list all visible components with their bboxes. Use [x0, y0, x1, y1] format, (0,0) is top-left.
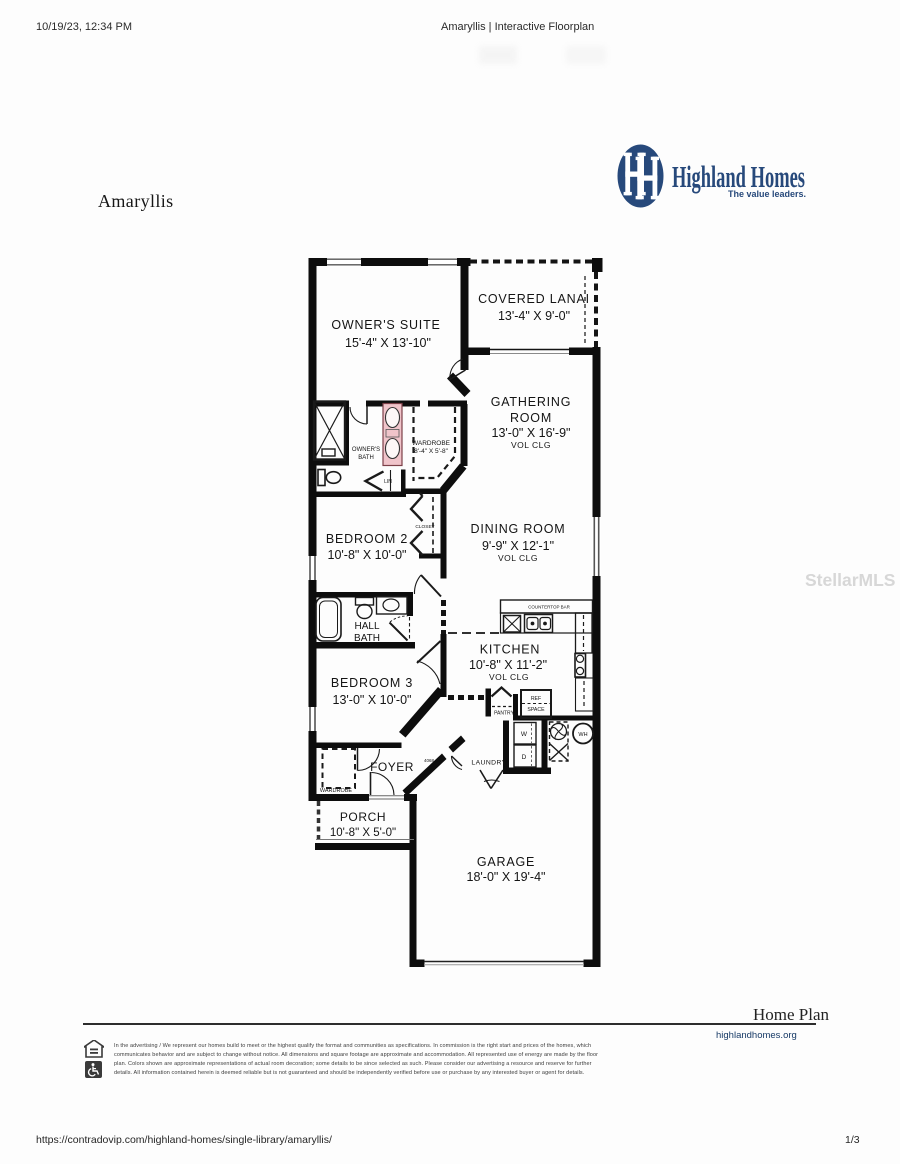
svg-text:KITCHEN: KITCHEN [480, 643, 540, 657]
svg-text:BATH: BATH [358, 455, 374, 461]
svg-text:COVERED LANAI: COVERED LANAI [478, 292, 590, 306]
svg-text:WARDROBE: WARDROBE [320, 788, 353, 794]
svg-text:W: W [521, 731, 528, 738]
svg-text:9'-9" X 12'-1": 9'-9" X 12'-1" [482, 539, 554, 553]
svg-text:10'-8" X 5'-0": 10'-8" X 5'-0" [330, 827, 396, 839]
svg-text:BEDROOM 3: BEDROOM 3 [331, 676, 413, 690]
svg-text:OWNER'S SUITE: OWNER'S SUITE [331, 318, 440, 332]
svg-text:LIN: LIN [384, 479, 392, 485]
svg-text:FOYER: FOYER [370, 760, 414, 774]
svg-text:GARAGE: GARAGE [477, 855, 535, 869]
svg-text:8'-4" X 5'-8": 8'-4" X 5'-8" [414, 448, 449, 455]
svg-text:10'-8" X 11'-2": 10'-8" X 11'-2" [469, 658, 547, 672]
svg-text:COUNTERTOP BAR: COUNTERTOP BAR [528, 605, 571, 610]
svg-text:GATHERING: GATHERING [491, 395, 572, 409]
svg-text:13'-0" X 10'-0": 13'-0" X 10'-0" [333, 693, 412, 707]
svg-text:WH: WH [578, 732, 587, 738]
svg-text:DINING ROOM: DINING ROOM [471, 522, 566, 536]
svg-text:13'-0" X 16'-9": 13'-0" X 16'-9" [492, 426, 571, 440]
svg-text:SPACE: SPACE [527, 707, 545, 713]
svg-text:WARDROBE: WARDROBE [412, 440, 451, 447]
svg-text:BATH: BATH [354, 633, 380, 644]
svg-text:PORCH: PORCH [340, 810, 386, 824]
svg-text:VOL CLG: VOL CLG [498, 553, 538, 563]
svg-text:10'-8" X 10'-0": 10'-8" X 10'-0" [328, 548, 407, 562]
svg-text:REF: REF [531, 696, 541, 702]
svg-text:OWNER'S: OWNER'S [352, 447, 380, 453]
svg-text:18'-0" X 19'-4": 18'-0" X 19'-4" [467, 870, 546, 884]
svg-text:15'-4" X 13'-10": 15'-4" X 13'-10" [345, 336, 431, 350]
svg-text:VOL CLG: VOL CLG [511, 440, 551, 450]
svg-text:VOL CLG: VOL CLG [489, 672, 529, 682]
svg-text:CLOSET: CLOSET [415, 524, 434, 530]
svg-text:D: D [522, 754, 527, 761]
svg-text:BEDROOM 2: BEDROOM 2 [326, 532, 408, 546]
svg-text:HALL: HALL [354, 621, 379, 632]
svg-text:ROOM: ROOM [510, 411, 552, 425]
svg-text:LAUNDRY: LAUNDRY [471, 760, 506, 767]
svg-text:PANTRY: PANTRY [494, 711, 514, 717]
svg-text:13'-4" X 9'-0": 13'-4" X 9'-0" [498, 309, 570, 323]
svg-text:4068: 4068 [424, 758, 435, 763]
